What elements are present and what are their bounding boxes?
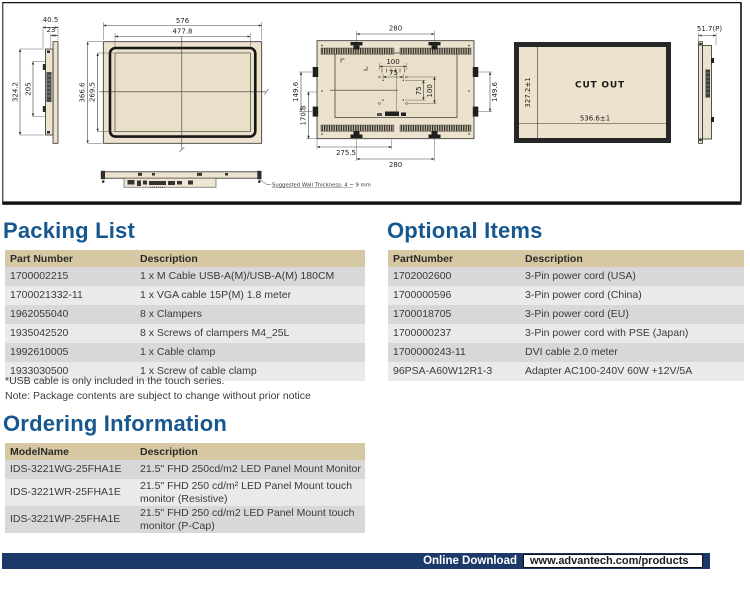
description-cell: 1 x VGA cable 15P(M) 1.8 meter	[135, 286, 365, 305]
dim-front-width-inner: 477.8	[172, 28, 192, 36]
description-cell: 3-Pin power cord (USA)	[520, 267, 744, 286]
footer-download-bar: Online Download www.advantech.com/produc…	[2, 553, 710, 569]
back-view-drawing: 280 100 75 75 100 149.6 170.8 149.6 275.…	[292, 25, 499, 170]
dim-back-width-bottom-inner: 275.5	[336, 149, 356, 157]
description-cell: 1 x Cable clamp	[135, 343, 365, 362]
dim-cutout-width: 536.6±1	[580, 115, 610, 123]
description-cell: 21.5" FHD 250 cd/m² LED Panel Mount touc…	[135, 479, 365, 506]
description-cell: 3-Pin power cord (China)	[520, 286, 744, 305]
dim-front-height-inner: 269.5	[89, 82, 97, 102]
description-cell: 1 x M Cable USB-A(M)/USB-A(M) 180CM	[135, 267, 365, 286]
dim-vesa-v75: 75	[415, 86, 423, 95]
dim-side-left-depth-inner: 23	[47, 26, 56, 34]
part-number-cell: 1962055040	[5, 305, 135, 324]
part-number-cell: 1700021332-11	[5, 286, 135, 305]
technical-drawings-panel: 40.5 23 324.2 205 576 477.8 366.6 269.5	[0, 0, 750, 215]
table-row: 17000022151 x M Cable USB-A(M)/USB-A(M) …	[5, 267, 365, 286]
table-header-row: ModelName Description	[5, 443, 365, 460]
model-name-cell: IDS-3221WR-25FHA1E	[5, 479, 135, 506]
part-number-cell: 96PSA-A60W12R1-3	[388, 362, 520, 381]
packing-list-table: Part Number Description 17000022151 x M …	[5, 250, 365, 381]
dim-side-right-depth: 51.7(P)	[697, 25, 723, 33]
dim-back-clamp-right: 149.6	[491, 81, 499, 102]
description-cell: 8 x Screws of clampers M4_25L	[135, 324, 365, 343]
table-row: 1700000243-11DVI cable 2.0 meter	[388, 343, 744, 362]
note-package-contents: Note: Package contents are subject to ch…	[5, 389, 375, 404]
note-usb-cable: *USB cable is only included in the touch…	[5, 374, 375, 389]
part-number-cell: 1700000237	[388, 324, 520, 343]
table-header-row: Part Number Description	[5, 250, 365, 267]
dim-vesa-v100: 100	[426, 84, 434, 97]
dim-front-width: 576	[176, 17, 190, 25]
dim-back-width-bottom: 280	[389, 161, 402, 169]
description-cell: 8 x Clampers	[135, 305, 365, 324]
description-cell: 21.5" FHD 250 cd/m2 LED Panel Mount touc…	[135, 506, 365, 533]
dim-side-left-depth: 40.5	[43, 16, 59, 24]
dim-cutout-height: 327.2±1	[524, 77, 532, 107]
dim-front-height: 366.6	[79, 82, 87, 103]
optional-items-section: PartNumber Description 17020026003-Pin p…	[388, 250, 744, 381]
part-number-cell: 1702002600	[388, 267, 520, 286]
packing-notes: *USB cable is only included in the touch…	[5, 374, 375, 404]
description-cell: DVI cable 2.0 meter	[520, 343, 744, 362]
dim-back-width-top: 280	[389, 25, 402, 33]
cutout-drawing: 327.2±1 CUT OUT 536.6±1	[514, 42, 671, 143]
table-row: IDS-3221WG-25FHA1E21.5" FHD 250cd/m2 LED…	[5, 460, 365, 479]
column-header-description: Description	[135, 250, 365, 267]
online-download-label: Online Download	[423, 555, 517, 567]
optional-items-table: PartNumber Description 17020026003-Pin p…	[388, 250, 744, 381]
part-number-cell: 1935042520	[5, 324, 135, 343]
table-row: 19620550408 x Clampers	[5, 305, 365, 324]
model-name-cell: IDS-3221WG-25FHA1E	[5, 460, 135, 479]
column-header-description: Description	[520, 250, 744, 267]
description-cell: 21.5" FHD 250cd/m2 LED Panel Mount Monit…	[135, 460, 365, 479]
ordering-information-title: Ordering Information	[3, 411, 227, 437]
dim-back-clamp-left: 149.6	[292, 81, 300, 102]
model-name-cell: IDS-3221WP-25FHA1E	[5, 506, 135, 533]
description-cell: Adapter AC100-240V 60W +12V/5A	[520, 362, 744, 381]
column-header-model-name: ModelName	[5, 443, 135, 460]
cutout-label: CUT OUT	[575, 81, 625, 91]
table-header-row: PartNumber Description	[388, 250, 744, 267]
table-row: 17020026003-Pin power cord (USA)	[388, 267, 744, 286]
column-header-part-number: PartNumber	[388, 250, 520, 267]
table-row: 19926100051 x Cable clamp	[5, 343, 365, 362]
packing-list-title: Packing List	[3, 218, 135, 244]
bottom-view-drawing: Suggested Wall Thickness: 4 ~ 9 mm	[101, 171, 371, 189]
part-number-cell: 1700000596	[388, 286, 520, 305]
part-number-cell: 1700002215	[5, 267, 135, 286]
part-number-cell: 1992610005	[5, 343, 135, 362]
side-view-left-drawing: 40.5 23 324.2 205	[12, 16, 59, 143]
dim-vesa-h100: 100	[386, 58, 399, 66]
column-header-part-number: Part Number	[5, 250, 135, 267]
dim-side-left-height: 324.2	[12, 82, 20, 102]
optional-items-title: Optional Items	[387, 218, 543, 244]
packing-list-section: Part Number Description 17000022151 x M …	[5, 250, 365, 381]
download-url-link[interactable]: www.advantech.com/products	[523, 554, 703, 568]
part-number-cell: 1700018705	[388, 305, 520, 324]
table-row: 17000005963-Pin power cord (China)	[388, 286, 744, 305]
column-header-description: Description	[135, 443, 365, 460]
description-cell: 3-Pin power cord with PSE (Japan)	[520, 324, 744, 343]
table-row: IDS-3221WP-25FHA1E21.5" FHD 250 cd/m2 LE…	[5, 506, 365, 533]
dim-vesa-h75: 75	[389, 69, 398, 77]
wall-thickness-note: Suggested Wall Thickness: 4 ~ 9 mm	[272, 182, 371, 188]
part-number-cell: 1700000243-11	[388, 343, 520, 362]
table-row: 96PSA-A60W12R1-3Adapter AC100-240V 60W +…	[388, 362, 744, 381]
ordering-information-section: ModelName Description IDS-3221WG-25FHA1E…	[5, 443, 365, 533]
dim-back-height-bottom-left: 170.8	[300, 105, 308, 125]
table-row: IDS-3221WR-25FHA1E21.5" FHD 250 cd/m² LE…	[5, 479, 365, 506]
table-row: 1700021332-111 x VGA cable 15P(M) 1.8 me…	[5, 286, 365, 305]
table-row: 17000002373-Pin power cord with PSE (Jap…	[388, 324, 744, 343]
table-row: 17000187053-Pin power cord (EU)	[388, 305, 744, 324]
front-view-drawing: 576 477.8 366.6 269.5	[79, 17, 269, 152]
dim-side-left-height-inner: 205	[25, 82, 33, 95]
ordering-information-table: ModelName Description IDS-3221WG-25FHA1E…	[5, 443, 365, 533]
description-cell: 3-Pin power cord (EU)	[520, 305, 744, 324]
table-row: 19350425208 x Screws of clampers M4_25L	[5, 324, 365, 343]
side-view-right-drawing: 51.7(P)	[697, 25, 723, 143]
